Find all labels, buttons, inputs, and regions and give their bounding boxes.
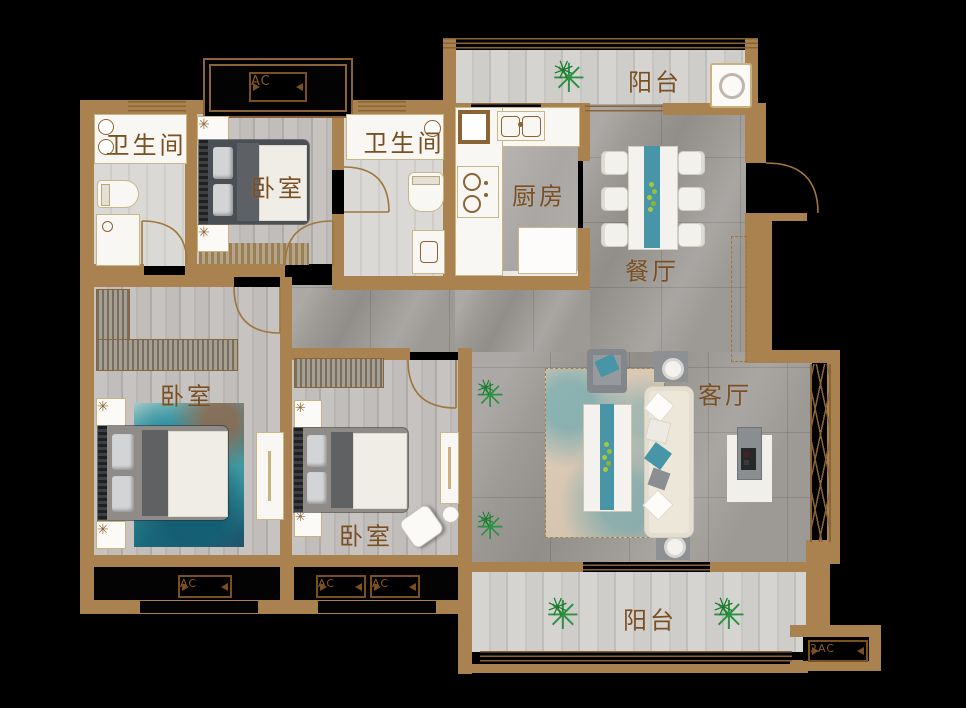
door-arc [234, 287, 280, 333]
floor-plan: AC AC AC AC 2AC ✳ ✳ ✳ ✳ ✳ ✳ [0, 0, 966, 708]
room-label-bathroom-mid: 卫生间 [364, 124, 445, 159]
door-arc [344, 167, 389, 212]
door-arc [408, 360, 456, 408]
room-label-bathroom-left: 卫生间 [106, 126, 187, 161]
room-label-bedroom-mid: 卧室 [339, 517, 393, 552]
room-label-dining: 餐厅 [625, 252, 679, 287]
door-arc [285, 221, 333, 266]
door-arcs-layer [0, 0, 966, 708]
room-label-balcony-bottom: 阳台 [623, 601, 677, 636]
entry-door-arc [766, 163, 818, 213]
room-label-living: 客厅 [698, 376, 752, 411]
room-label-kitchen: 厨房 [512, 177, 566, 212]
room-label-bedroom-left: 卧室 [160, 377, 214, 412]
door-arc [142, 221, 187, 264]
room-label-bedroom-top: 卧室 [251, 169, 305, 204]
room-label-balcony-top: 阳台 [628, 63, 682, 98]
